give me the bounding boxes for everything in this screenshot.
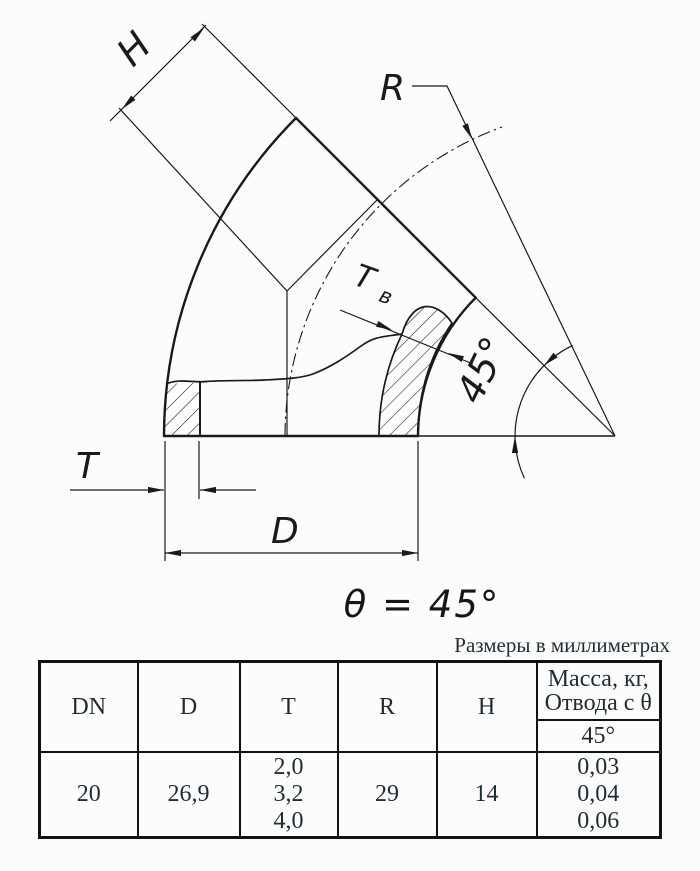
angle-dimension-arc [515, 345, 573, 478]
cut-wall-sections [165, 307, 453, 437]
tv-arrow-left [376, 321, 392, 330]
tv-dimension-label: T в [348, 258, 401, 310]
cell-d: 26,9 [138, 752, 240, 837]
cell-mass-value-2: 0,04 [538, 781, 660, 808]
header-t: T [240, 662, 338, 753]
cell-t-value-2: 3,2 [241, 781, 337, 808]
dimensions-table-wrap: DN D T R H Масса, кг, Отвода с θ 45° 20 … [38, 660, 662, 839]
break-line [166, 334, 402, 384]
header-mass-line2: Отвода с θ [538, 691, 660, 715]
dimensions-table: DN D T R H Масса, кг, Отвода с θ 45° 20 … [38, 660, 662, 839]
header-dn: DN [40, 662, 138, 753]
left-wall-section [165, 383, 201, 437]
d-dimension-label: D [271, 511, 299, 552]
h-dimension-label: H [108, 23, 159, 74]
angle-dimension-label: 45° [448, 330, 517, 410]
angle-arrow-bottom [512, 436, 518, 453]
drawing-page: H R T в 45° T D θ = 45° Размеры в миллим… [0, 0, 700, 871]
r-arrow [462, 123, 472, 139]
cell-mass: 0,03 0,04 0,06 [537, 752, 661, 837]
cell-r: 29 [338, 752, 437, 837]
angle-arrow-top [544, 353, 558, 366]
r-dimension-label: R [380, 68, 405, 109]
units-note: Размеры в миллиметрах [454, 633, 670, 658]
d-arrow-left [165, 550, 181, 556]
elbow-diagram: H R T в 45° T D [0, 0, 700, 600]
header-d: D [138, 662, 240, 753]
h-arrow-upper [191, 28, 205, 42]
r-leader-line [412, 86, 615, 436]
cell-t-value-1: 2,0 [241, 754, 337, 781]
cell-h: 14 [437, 752, 537, 837]
t-arrow-right [200, 487, 216, 493]
tv-label-subscript: в [376, 283, 396, 310]
cell-t-value-3: 4,0 [241, 808, 337, 835]
cell-t: 2,0 3,2 4,0 [240, 752, 338, 837]
header-r: R [338, 662, 437, 753]
header-mass-line1: Масса, кг, [538, 667, 660, 691]
header-h: H [437, 662, 537, 753]
t-dimension-label: T [76, 446, 101, 487]
elbow-outline [164, 118, 476, 436]
header-mass: Масса, кг, Отвода с θ [537, 662, 661, 721]
dimension-lines [70, 25, 615, 553]
theta-equation: θ = 45° [292, 583, 552, 626]
h-parallel-line [119, 108, 287, 291]
cell-dn: 20 [40, 752, 138, 837]
cell-mass-value-3: 0,06 [538, 808, 660, 835]
header-mass-angle: 45° [537, 720, 661, 752]
face-extension-upper [202, 24, 296, 118]
cell-mass-value-1: 0,03 [538, 754, 660, 781]
d-arrow-right [402, 550, 418, 556]
tv-label-main: T [349, 258, 381, 299]
t-arrow-left [148, 487, 164, 493]
right-wall-section [379, 307, 452, 437]
